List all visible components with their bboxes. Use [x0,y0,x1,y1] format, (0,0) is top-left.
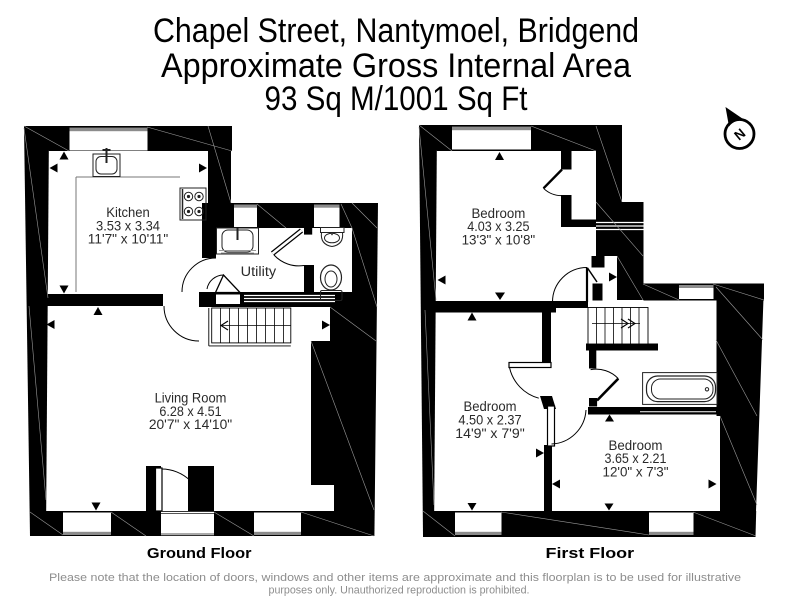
svg-text:Ground Floor: Ground Floor [147,545,252,562]
svg-text:12'0" x 7'3": 12'0" x 7'3" [603,464,669,479]
svg-text:14'9" x 7'9": 14'9" x 7'9" [455,426,525,441]
svg-text:First Floor: First Floor [546,545,635,562]
svg-text:Utility: Utility [241,264,277,279]
svg-text:Chapel Street, Nantymoel, Brid: Chapel Street, Nantymoel, Bridgend [153,12,639,50]
svg-text:13'3" x 10'8": 13'3" x 10'8" [462,232,536,247]
svg-text:11'7" x 10'11": 11'7" x 10'11" [88,231,169,246]
svg-text:Please note that the location: Please note that the location of doors, … [49,572,741,584]
svg-text:20'7" x 14'10": 20'7" x 14'10" [149,417,233,432]
svg-text:purposes only. Unauthorized re: purposes only. Unauthorized reproduction… [269,585,530,597]
svg-text:93 Sq M/1001 Sq Ft: 93 Sq M/1001 Sq Ft [265,80,528,118]
